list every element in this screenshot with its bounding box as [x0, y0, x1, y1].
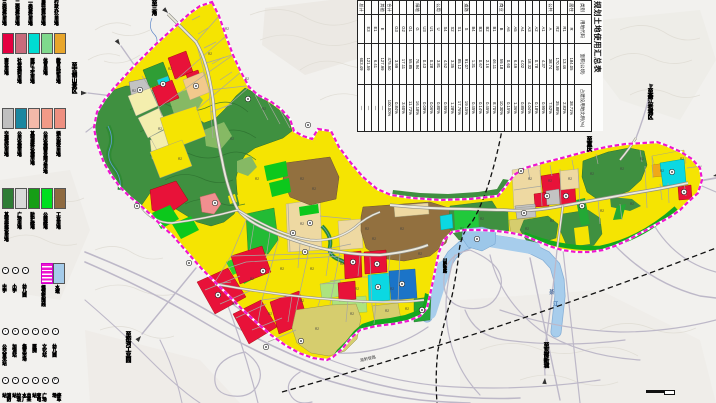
svg-text:R2: R2	[385, 309, 389, 313]
svg-text:R2: R2	[630, 202, 634, 206]
svg-text:R2: R2	[600, 209, 604, 213]
svg-text:R2: R2	[460, 227, 464, 231]
svg-text:R2: R2	[528, 177, 532, 181]
svg-text:R2: R2	[620, 167, 624, 171]
svg-text:R2: R2	[372, 237, 376, 241]
svg-text:R2: R2	[640, 157, 644, 161]
svg-text:R2: R2	[350, 312, 354, 316]
svg-text:R2: R2	[405, 307, 409, 311]
svg-text:R2: R2	[132, 89, 136, 93]
svg-text:R2: R2	[390, 287, 394, 291]
svg-text:R2: R2	[230, 137, 234, 141]
svg-text:R2: R2	[310, 267, 314, 271]
svg-text:R2: R2	[548, 179, 552, 183]
svg-text:R2: R2	[400, 227, 404, 231]
svg-text:R2: R2	[232, 302, 236, 306]
svg-text:R2: R2	[355, 287, 359, 291]
svg-text:R2: R2	[315, 327, 319, 331]
svg-text:R2: R2	[255, 177, 259, 181]
svg-text:R2: R2	[158, 127, 162, 131]
svg-text:R2: R2	[262, 107, 266, 111]
svg-text:R2: R2	[250, 277, 254, 281]
svg-text:R2: R2	[312, 187, 316, 191]
svg-text:R2: R2	[300, 222, 304, 226]
svg-text:R2: R2	[268, 312, 272, 316]
svg-text:R2: R2	[365, 227, 369, 231]
svg-text:R2: R2	[590, 172, 594, 176]
svg-text:R2: R2	[550, 219, 554, 223]
svg-text:R2: R2	[418, 252, 422, 256]
svg-text:R2: R2	[245, 77, 249, 81]
svg-text:R2: R2	[525, 227, 529, 231]
svg-text:R2: R2	[208, 52, 212, 56]
svg-text:R2: R2	[280, 267, 284, 271]
svg-text:R2: R2	[178, 157, 182, 161]
svg-text:R2: R2	[680, 157, 684, 161]
svg-text:R2: R2	[300, 299, 304, 303]
svg-text:R2: R2	[568, 177, 572, 181]
svg-text:R2: R2	[660, 169, 664, 173]
svg-text:R2: R2	[168, 67, 172, 71]
svg-text:R2: R2	[300, 177, 304, 181]
svg-text:R2: R2	[225, 27, 229, 31]
svg-text:R2: R2	[480, 217, 484, 221]
svg-text:R2: R2	[340, 262, 344, 266]
